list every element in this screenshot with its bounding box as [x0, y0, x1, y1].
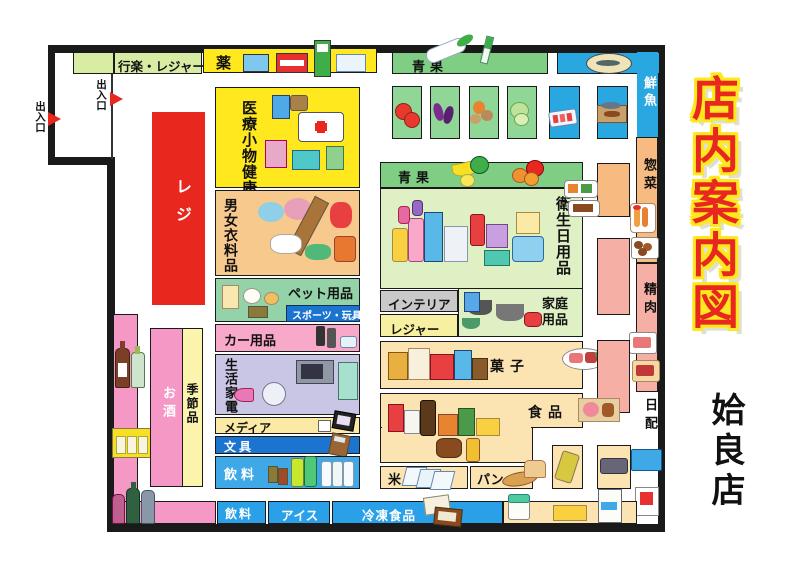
- cassette-icon: [332, 410, 357, 432]
- sake-bottle-icon: [131, 352, 145, 388]
- shampoo-bottle-icon: [408, 218, 424, 262]
- entrance-top-label: 出入口: [94, 79, 109, 119]
- diaper-pack-icon: [512, 236, 544, 262]
- soap-pack-icon: [486, 224, 508, 248]
- supplement-box-icon: [272, 95, 290, 119]
- bread-loaf-icon: [524, 460, 546, 478]
- detergent-box-icon: [424, 212, 443, 262]
- fish-logo-icon: [586, 53, 632, 74]
- fresh-fish-label: 鮮魚: [640, 76, 659, 132]
- health-pack-icon: [265, 140, 287, 168]
- pet-cans-icon: [248, 306, 268, 318]
- seasonal-label: 季節品: [184, 383, 201, 435]
- medicine-box-icon: [243, 54, 269, 72]
- rice-label: 米: [388, 469, 401, 488]
- car-label: カー用品: [224, 330, 276, 349]
- frozen-food-label: 冷凍食品: [362, 505, 416, 524]
- media-label: メディア: [224, 419, 271, 436]
- miso-tub-icon: [436, 438, 462, 458]
- pot-icon: [496, 304, 524, 321]
- pet-bottle-icon: [343, 461, 354, 487]
- wine-bottle-icon: [115, 348, 130, 388]
- pet-bottle-icon: [304, 456, 317, 487]
- register-label: レジ: [169, 178, 193, 242]
- shampoo-bottle-icon: [392, 228, 408, 262]
- flour-bag-icon: [404, 410, 420, 434]
- store-map-page: 出入口 出入口 行楽・レジャー 薬 青果 鮮魚 惣菜 精肉: [0, 0, 800, 577]
- orange-icon: [524, 172, 539, 186]
- yogurt-cup-icon: [508, 494, 530, 520]
- produce-mid-label: 青果: [398, 167, 434, 186]
- alcohol-label: お酒: [159, 386, 178, 426]
- bowl-icon: [462, 318, 480, 329]
- towel-icon: [464, 292, 480, 312]
- snack-bag-icon: [430, 354, 454, 380]
- wall-bottom: [107, 524, 665, 532]
- beef-pack-icon: [632, 360, 660, 382]
- daily-goods-label: 日配: [641, 398, 660, 438]
- potato-icon: [481, 110, 493, 121]
- paper-pack-icon: [516, 212, 540, 234]
- liqueur-bottle-icon: [112, 494, 125, 524]
- bag-icon: [334, 236, 356, 262]
- deli-aisle-block: [597, 163, 630, 217]
- fish-display-icon: [597, 105, 627, 123]
- noodle-pack-icon: [458, 408, 475, 436]
- health-pack-icon: [326, 146, 344, 170]
- deli-plate-icon: [564, 180, 598, 198]
- sliced-meat-icon: [629, 332, 657, 354]
- spray-can-icon: [327, 328, 336, 348]
- medical-health-label: 医療小物健康食品: [218, 100, 258, 172]
- entrance-corridor-line: [111, 74, 113, 159]
- pet-bottle-icon: [321, 461, 332, 487]
- entrance-left-label: 出入口: [33, 101, 48, 141]
- beer-case-icon: [112, 428, 152, 458]
- pouch-icon: [600, 458, 628, 474]
- clothing-label: 男女衣料品: [221, 198, 241, 278]
- deli-plate-icon: [568, 200, 600, 217]
- tv-icon: [296, 360, 334, 384]
- entrance-left-arrow-icon: [48, 112, 61, 126]
- red-pack-icon: [635, 487, 659, 516]
- butter-box-icon: [553, 505, 587, 521]
- supplement-jar-icon: [290, 95, 308, 111]
- bread-label: パン: [477, 469, 504, 488]
- pet-label: ペット用品: [288, 283, 353, 302]
- stationery-label: 文具: [224, 438, 254, 455]
- cosmetic-icon: [412, 200, 423, 216]
- clothes-pile-icon: [258, 202, 284, 222]
- appliances-label: 生活家電: [221, 358, 240, 414]
- kettle-icon: [524, 312, 542, 327]
- sweets-label: 菓子: [490, 356, 530, 376]
- wine-bottle-icon: [126, 488, 140, 524]
- lemon-icon: [460, 174, 475, 187]
- medicine-label: 薬: [216, 52, 231, 73]
- clothes-pile-icon: [305, 244, 331, 260]
- wall-left-jog: [48, 157, 115, 165]
- canned-food-icon: [388, 404, 404, 432]
- health-pack-icon: [292, 150, 320, 170]
- store-name: 姶良店: [701, 392, 750, 532]
- kitten-icon: [264, 292, 279, 305]
- ham-icon: [578, 398, 620, 422]
- sports-toys-label: スポーツ・玩具: [292, 307, 362, 322]
- cabbage-icon: [514, 113, 529, 126]
- food-label: 食品: [528, 402, 568, 422]
- spray-bottle-icon: [470, 214, 485, 246]
- first-aid-kit-icon: [298, 112, 344, 142]
- snack-bag-icon: [408, 348, 430, 380]
- puppy-icon: [243, 288, 261, 304]
- interior-label: インテリア: [388, 294, 451, 313]
- tomato-icon: [404, 112, 420, 128]
- candy-box-icon: [454, 350, 472, 380]
- frozen-food-block: [332, 501, 503, 524]
- soy-sauce-icon: [420, 400, 436, 436]
- pet-bottle-icon: [332, 461, 343, 487]
- page-title: 店内案内図: [688, 74, 735, 354]
- clothes-pile-icon: [270, 234, 302, 254]
- cd-icon: [318, 420, 331, 432]
- wall-left-upper: [48, 45, 55, 165]
- leisure-label: レジャー: [390, 319, 439, 338]
- entrance-top-arrow-icon: [110, 92, 123, 106]
- blue-crate-icon: [631, 449, 662, 471]
- leisure-banner-label: 行楽・レジャー: [118, 56, 205, 75]
- pet-food-bag-icon: [222, 285, 239, 309]
- can-icon: [268, 466, 278, 483]
- tissue-box-icon: [444, 226, 468, 262]
- medicine-abc-box-icon: [276, 53, 308, 73]
- beverages-label: 飲料: [224, 464, 258, 483]
- spray-can-icon: [316, 326, 325, 346]
- meat-aisle-block-1: [597, 238, 630, 315]
- medicine-pack-icon: [336, 54, 366, 72]
- meat-label: 精肉: [640, 282, 659, 336]
- cosmetic-icon: [398, 206, 410, 224]
- can-icon: [278, 468, 288, 485]
- washer-icon: [262, 382, 286, 406]
- wax-tub-icon: [340, 336, 357, 348]
- soap-pack-icon: [484, 250, 510, 266]
- shrimp-tempura-icon: [630, 203, 656, 233]
- frozen-pack-icon: [433, 507, 463, 528]
- milk-carton-icon: [598, 489, 622, 523]
- watermelon-icon: [470, 156, 489, 174]
- curry-box-icon: [476, 418, 500, 436]
- household-label: 家庭用品: [542, 296, 572, 328]
- sake-bottle-icon: [141, 490, 155, 524]
- snack-bag-icon: [388, 352, 408, 380]
- potato-icon: [470, 114, 481, 124]
- pet-bottle-icon: [291, 458, 304, 487]
- ice-cream-label: アイス: [281, 505, 318, 524]
- fridge-icon: [338, 362, 358, 400]
- clothes-pile-icon: [330, 202, 352, 228]
- oil-bottle-icon: [466, 438, 480, 462]
- seasoning-icon: [438, 414, 458, 436]
- karaage-icon: [631, 237, 659, 259]
- beverages-bottom-label: 飲料: [225, 505, 253, 522]
- juice-box-icon: [314, 40, 331, 77]
- iron-icon: [234, 388, 254, 402]
- cookie-box-icon: [472, 358, 488, 380]
